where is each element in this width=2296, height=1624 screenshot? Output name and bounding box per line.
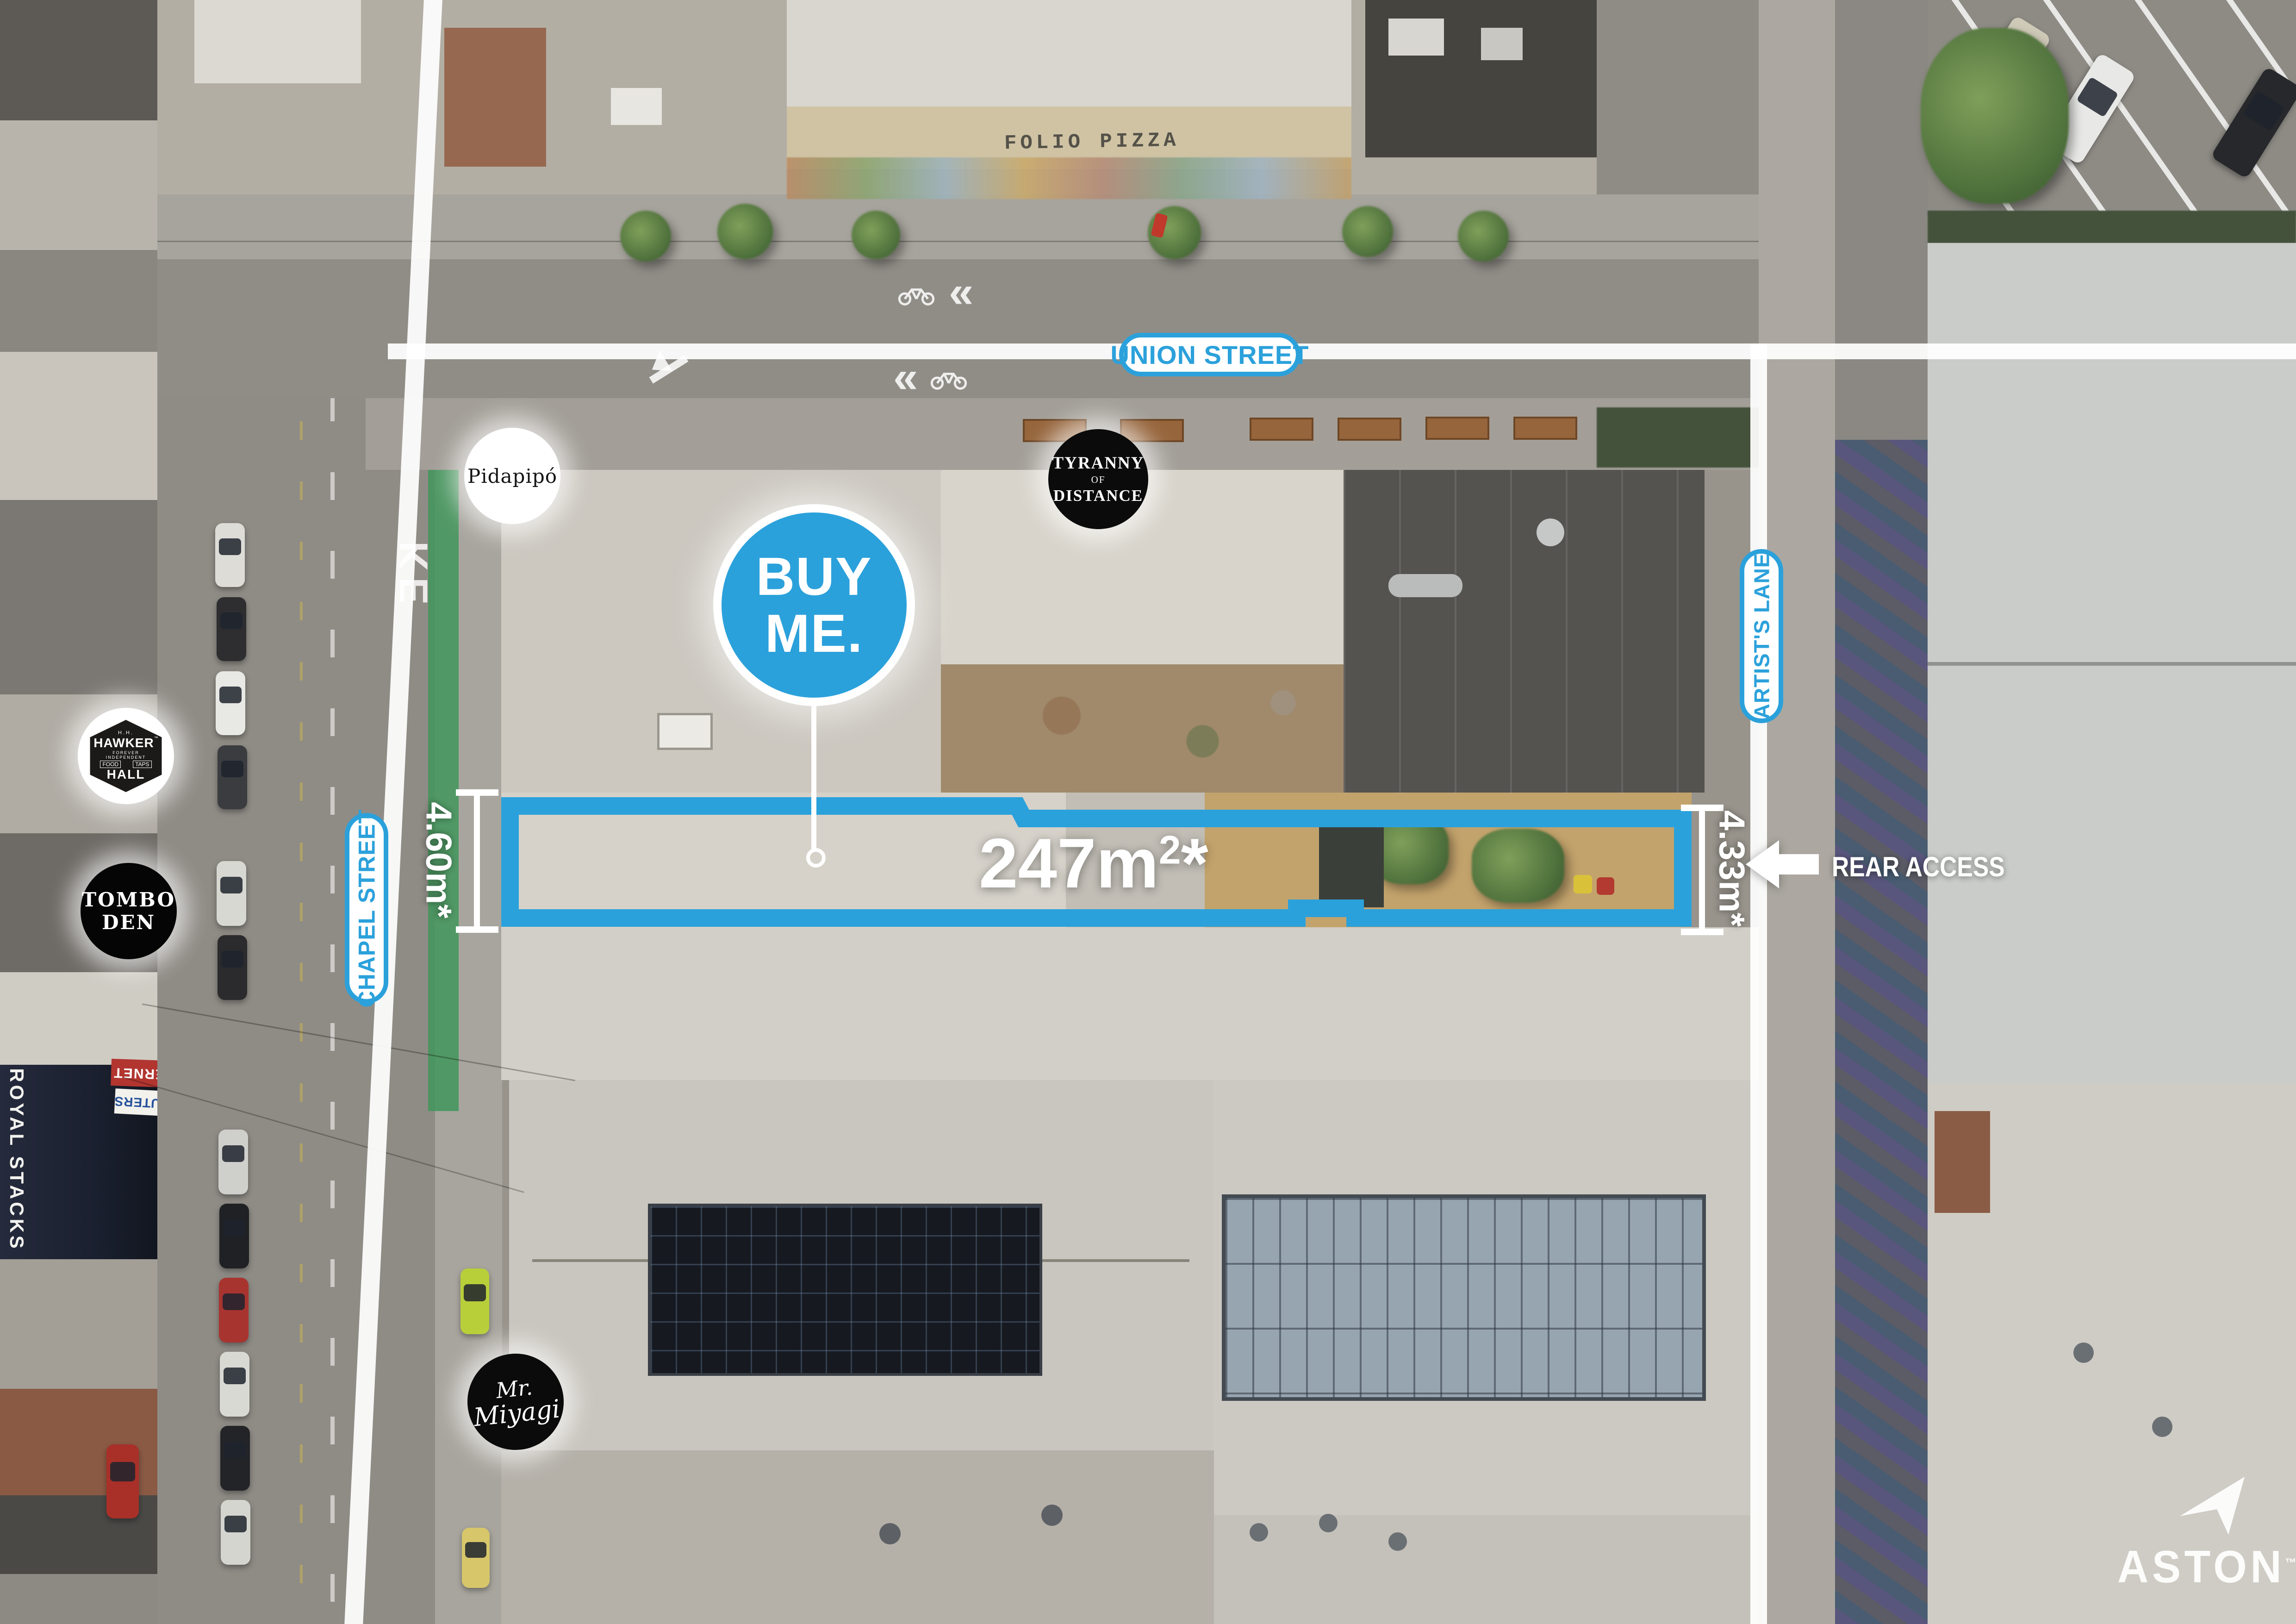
street-label-union-text: UNION STREET [1111, 340, 1309, 370]
buy-me-badge: BUY ME. [713, 504, 915, 706]
left-dimension-cap-bottom [456, 926, 498, 933]
street-label-chapel: CHAPEL STREET [345, 813, 388, 1004]
hawker-monogram: H.H. [118, 730, 134, 736]
logo-tyranny-line1: TYRANNY [1052, 453, 1145, 473]
logo-tombo-line1: TOMBO [82, 888, 175, 911]
street-label-union: UNION STREET [1119, 333, 1300, 376]
rear-access-arrow-head [1746, 840, 1779, 888]
right-dimension-line [1699, 808, 1705, 932]
hawker-name-bottom: HALL [107, 767, 145, 782]
rear-access-arrow-shaft [1778, 854, 1819, 874]
logo-tyranny-line3: DISTANCE [1053, 487, 1143, 505]
logo-tombo-den: TOMBO DEN [81, 863, 177, 959]
aston-plane-icon [2178, 1474, 2247, 1544]
aston-tm: ™ [2285, 1555, 2296, 1569]
aerial-site-photo: ROYAL STACKS INTERNET COMPUTERS [0, 0, 2296, 1624]
property-area-label: 247m2* [979, 823, 1208, 904]
logo-pidapipo: Pidapipó [464, 428, 560, 524]
area-value: 247m [979, 824, 1159, 903]
logo-tombo-line2: DEN [102, 911, 156, 934]
property-boundary-outline [0, 0, 2296, 1624]
hawker-tagline2: INDEPENDENT [106, 755, 146, 760]
hawker-name-top: HAWKER [93, 736, 154, 750]
logo-pidapipo-text: Pidapipó [467, 465, 557, 487]
street-label-artists-lane: ARTIST'S LANE [1740, 549, 1783, 723]
aston-name: ASTON [2117, 1541, 2285, 1592]
buy-me-line2: ME. [765, 605, 863, 662]
logo-tyranny-of-distance: TYRANNY OF DISTANCE [1048, 429, 1148, 529]
area-superscript: 2 [1159, 828, 1181, 872]
aston-wordmark: ASTON™ [2117, 1541, 2296, 1593]
area-asterisk: * [1181, 824, 1208, 903]
logo-miyagi-line2: Miyagi [472, 1394, 561, 1432]
left-dimension-line [474, 793, 480, 930]
buy-me-stem [811, 704, 816, 849]
hawker-hexagon: H.H. HAWKER ™ FOREVER INDEPENDENT FOOD T… [85, 720, 167, 792]
hawker-tagline1: FOREVER [112, 750, 139, 755]
street-label-artists-lane-text: ARTIST'S LANE [1749, 553, 1774, 719]
logo-hawker-hall: H.H. HAWKER ™ FOREVER INDEPENDENT FOOD T… [78, 708, 174, 804]
left-dimension-cap-top [456, 789, 498, 796]
hawker-tm: ™ [154, 736, 158, 740]
street-label-chapel-text: CHAPEL STREET [353, 809, 380, 1008]
buy-me-stem-dot [806, 848, 826, 868]
rear-access-label: REAR ACCESS [1832, 851, 2005, 883]
right-dimension-cap-bottom [1681, 929, 1724, 935]
logo-tyranny-line2: OF [1091, 474, 1106, 486]
buy-me-line1: BUY [756, 548, 872, 605]
left-dimension-text: 4.60m* [418, 802, 460, 918]
